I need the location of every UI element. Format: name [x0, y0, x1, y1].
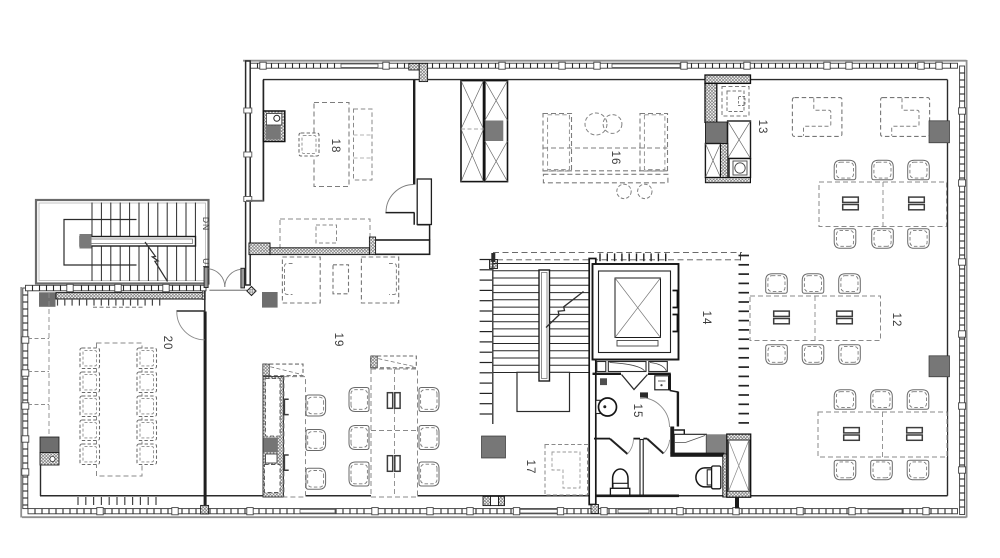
svg-text:18: 18	[329, 139, 341, 154]
svg-text:16: 16	[609, 151, 621, 166]
svg-text:20: 20	[161, 336, 173, 351]
svg-text:19: 19	[332, 333, 344, 348]
svg-text:13: 13	[756, 120, 768, 135]
svg-text:DN: DN	[201, 217, 211, 231]
svg-text:14: 14	[700, 311, 712, 326]
svg-text:12: 12	[890, 313, 902, 328]
svg-text:17: 17	[524, 460, 536, 475]
svg-text:15: 15	[631, 404, 643, 419]
